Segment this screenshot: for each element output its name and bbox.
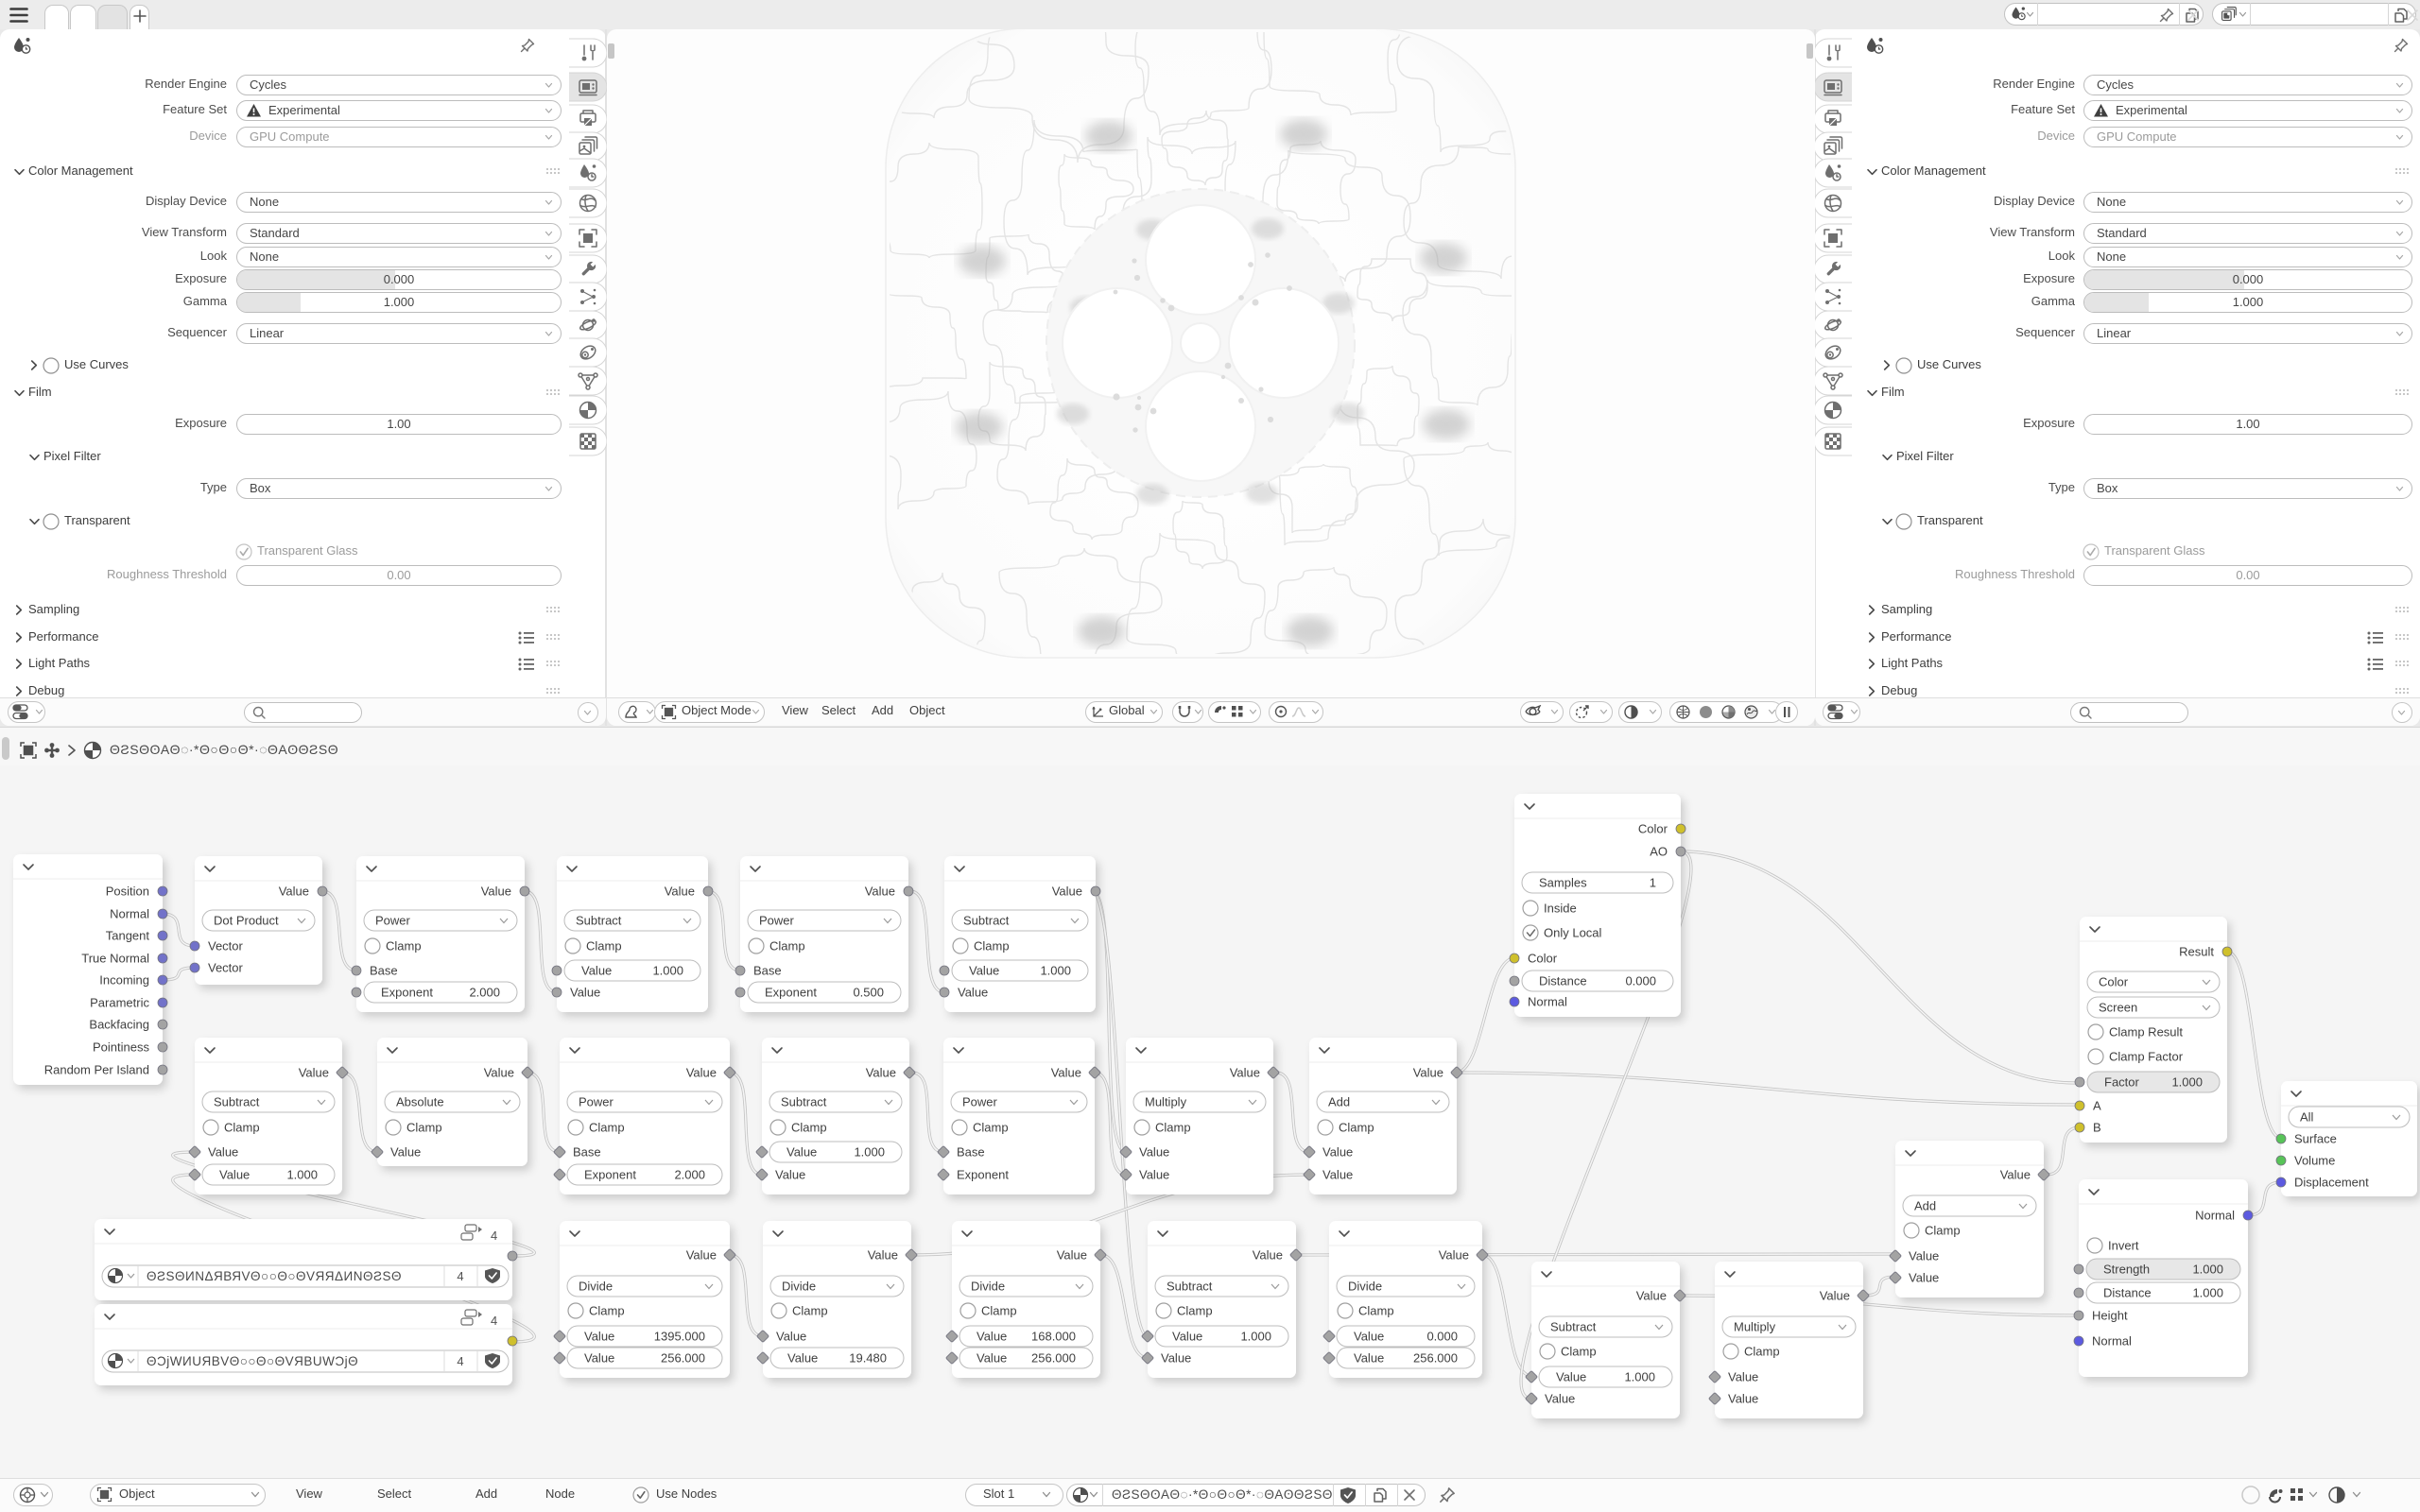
svg-text:Subtract: Subtract bbox=[1550, 1320, 1597, 1334]
svg-text:Value: Value bbox=[1161, 1351, 1191, 1366]
svg-text:Add: Add bbox=[1328, 1095, 1350, 1109]
svg-text:Clamp: Clamp bbox=[1561, 1345, 1597, 1359]
svg-text:Volume: Volume bbox=[2294, 1154, 2335, 1168]
svg-text:Value: Value bbox=[776, 1330, 806, 1344]
svg-text:Divide: Divide bbox=[1348, 1280, 1382, 1294]
svg-text:Result: Result bbox=[2179, 945, 2214, 959]
svg-text:Clamp: Clamp bbox=[1155, 1121, 1191, 1135]
svg-text:Clamp: Clamp bbox=[589, 1304, 625, 1318]
svg-text:Power: Power bbox=[962, 1095, 998, 1109]
svg-text:256.000: 256.000 bbox=[1413, 1351, 1458, 1366]
svg-text:Power: Power bbox=[579, 1095, 614, 1109]
svg-text:1: 1 bbox=[1650, 876, 1656, 890]
svg-text:Value: Value bbox=[1556, 1370, 1586, 1384]
svg-text:Clamp: Clamp bbox=[981, 1304, 1017, 1318]
svg-text:Samples: Samples bbox=[1539, 876, 1587, 890]
svg-text:Divide: Divide bbox=[579, 1280, 613, 1294]
svg-text:1.000: 1.000 bbox=[1240, 1330, 1271, 1344]
svg-text:Value: Value bbox=[219, 1168, 250, 1182]
svg-text:Base: Base bbox=[573, 1145, 601, 1160]
svg-text:1.000: 1.000 bbox=[652, 964, 683, 978]
svg-text:2.000: 2.000 bbox=[469, 986, 500, 1000]
svg-text:Value: Value bbox=[1322, 1168, 1353, 1182]
svg-text:1.000: 1.000 bbox=[286, 1168, 318, 1182]
svg-text:Value: Value bbox=[958, 986, 988, 1000]
svg-text:4: 4 bbox=[491, 1228, 497, 1243]
svg-text:Value: Value bbox=[1636, 1289, 1667, 1303]
svg-text:Clamp: Clamp bbox=[769, 939, 805, 954]
svg-text:Clamp: Clamp bbox=[1358, 1304, 1394, 1318]
svg-text:Inside: Inside bbox=[1544, 902, 1577, 916]
svg-text:Value: Value bbox=[584, 1351, 614, 1366]
svg-text:Subtract: Subtract bbox=[214, 1095, 260, 1109]
svg-text:Backfacing: Backfacing bbox=[89, 1018, 149, 1032]
svg-text:Value: Value bbox=[665, 885, 695, 899]
svg-text:Value: Value bbox=[786, 1145, 817, 1160]
svg-text:Divide: Divide bbox=[971, 1280, 1005, 1294]
svg-text:Divide: Divide bbox=[782, 1280, 816, 1294]
svg-text:Normal: Normal bbox=[2092, 1334, 2132, 1349]
svg-text:Value: Value bbox=[1439, 1248, 1469, 1263]
svg-text:Clamp: Clamp bbox=[974, 939, 1010, 954]
svg-text:Value: Value bbox=[977, 1330, 1007, 1344]
svg-text:Value: Value bbox=[1728, 1370, 1758, 1384]
svg-text:Value: Value bbox=[2000, 1168, 2031, 1182]
svg-text:Value: Value bbox=[775, 1168, 805, 1182]
svg-text:1.000: 1.000 bbox=[854, 1145, 885, 1160]
svg-text:Power: Power bbox=[375, 914, 411, 928]
svg-text:Clamp: Clamp bbox=[1339, 1121, 1374, 1135]
svg-text:Value: Value bbox=[866, 1066, 896, 1080]
svg-text:168.000: 168.000 bbox=[1031, 1330, 1076, 1344]
svg-text:Base: Base bbox=[370, 964, 398, 978]
svg-text:Normal: Normal bbox=[2195, 1209, 2235, 1223]
svg-text:Clamp: Clamp bbox=[1177, 1304, 1213, 1318]
svg-text:Value: Value bbox=[1172, 1330, 1202, 1344]
svg-text:Value: Value bbox=[1909, 1249, 1939, 1263]
svg-text:1.000: 1.000 bbox=[2171, 1075, 2203, 1090]
svg-text:Value: Value bbox=[1057, 1248, 1087, 1263]
svg-text:Value: Value bbox=[1253, 1248, 1283, 1263]
svg-text:Value: Value bbox=[1052, 885, 1082, 899]
svg-text:Add: Add bbox=[1914, 1199, 1936, 1213]
svg-text:Distance: Distance bbox=[1539, 974, 1587, 988]
svg-text:1.000: 1.000 bbox=[2192, 1286, 2223, 1300]
svg-text:Value: Value bbox=[787, 1351, 818, 1366]
svg-text:256.000: 256.000 bbox=[661, 1351, 705, 1366]
svg-text:Subtract: Subtract bbox=[781, 1095, 827, 1109]
svg-text:Height: Height bbox=[2092, 1309, 2128, 1323]
svg-text:1395.000: 1395.000 bbox=[654, 1330, 705, 1344]
svg-text:All: All bbox=[2300, 1110, 2314, 1125]
svg-text:Value: Value bbox=[1820, 1289, 1850, 1303]
svg-text:Vector: Vector bbox=[208, 961, 244, 975]
svg-text:Color: Color bbox=[2099, 975, 2129, 989]
svg-text:Factor: Factor bbox=[2104, 1075, 2140, 1090]
svg-text:Exponent: Exponent bbox=[381, 986, 433, 1000]
svg-text:Parametric: Parametric bbox=[90, 996, 149, 1010]
svg-text:Value: Value bbox=[1728, 1392, 1758, 1406]
svg-text:Base: Base bbox=[753, 964, 782, 978]
svg-text:Value: Value bbox=[299, 1066, 329, 1080]
svg-text:256.000: 256.000 bbox=[1031, 1351, 1076, 1366]
svg-text:Distance: Distance bbox=[2103, 1286, 2152, 1300]
svg-text:1.000: 1.000 bbox=[1624, 1370, 1655, 1384]
svg-text:4: 4 bbox=[491, 1314, 497, 1328]
svg-text:Vector: Vector bbox=[208, 939, 244, 954]
svg-text:Value: Value bbox=[868, 1248, 898, 1263]
svg-text:Random Per Island: Random Per Island bbox=[44, 1063, 149, 1077]
svg-text:Value: Value bbox=[969, 964, 999, 978]
svg-text:AO: AO bbox=[1650, 845, 1668, 859]
svg-text:Value: Value bbox=[484, 1066, 514, 1080]
svg-text:Value: Value bbox=[279, 885, 309, 899]
svg-text:Absolute: Absolute bbox=[396, 1095, 444, 1109]
svg-text:Surface: Surface bbox=[2294, 1132, 2337, 1146]
svg-text:Clamp: Clamp bbox=[973, 1121, 1009, 1135]
svg-text:Clamp: Clamp bbox=[1925, 1224, 1961, 1238]
svg-text:Value: Value bbox=[1322, 1145, 1353, 1160]
svg-text:Subtract: Subtract bbox=[576, 914, 622, 928]
svg-text:Exponent: Exponent bbox=[765, 986, 817, 1000]
svg-text:Value: Value bbox=[1051, 1066, 1081, 1080]
svg-text:Exponent: Exponent bbox=[584, 1168, 636, 1182]
svg-text:Clamp Result: Clamp Result bbox=[2109, 1025, 2183, 1039]
svg-text:0.000: 0.000 bbox=[1426, 1330, 1458, 1344]
svg-text:Value: Value bbox=[1545, 1392, 1575, 1406]
svg-text:Value: Value bbox=[1230, 1066, 1260, 1080]
svg-text:Pointiness: Pointiness bbox=[93, 1040, 149, 1055]
svg-text:Only Local: Only Local bbox=[1544, 926, 1602, 940]
svg-text:19.480: 19.480 bbox=[849, 1351, 887, 1366]
svg-text:Dot Product: Dot Product bbox=[214, 914, 279, 928]
svg-text:Incoming: Incoming bbox=[99, 973, 149, 988]
svg-text:Value: Value bbox=[1354, 1330, 1384, 1344]
svg-text:Color: Color bbox=[1638, 822, 1668, 836]
svg-text:Value: Value bbox=[570, 986, 600, 1000]
svg-text:True Normal: True Normal bbox=[81, 952, 149, 966]
svg-text:Clamp: Clamp bbox=[386, 939, 422, 954]
svg-text:Invert: Invert bbox=[2108, 1239, 2139, 1253]
svg-text:4: 4 bbox=[457, 1354, 463, 1368]
svg-text:Clamp: Clamp bbox=[792, 1304, 828, 1318]
svg-text:1.000: 1.000 bbox=[1040, 964, 1071, 978]
svg-text:Clamp: Clamp bbox=[589, 1121, 625, 1135]
svg-text:Normal: Normal bbox=[110, 907, 149, 921]
svg-text:Value: Value bbox=[865, 885, 895, 899]
svg-text:4: 4 bbox=[457, 1269, 463, 1283]
svg-text:Exponent: Exponent bbox=[957, 1168, 1009, 1182]
svg-text:2.000: 2.000 bbox=[674, 1168, 705, 1182]
svg-text:Subtract: Subtract bbox=[963, 914, 1010, 928]
svg-text:0.500: 0.500 bbox=[853, 986, 884, 1000]
svg-text:Screen: Screen bbox=[2099, 1001, 2137, 1015]
svg-text:Value: Value bbox=[581, 964, 612, 978]
svg-text:Displacement: Displacement bbox=[2294, 1176, 2369, 1190]
svg-text:Strength: Strength bbox=[2103, 1263, 2150, 1277]
svg-text:Value: Value bbox=[686, 1066, 717, 1080]
svg-text:Clamp: Clamp bbox=[406, 1121, 442, 1135]
svg-text:Multiply: Multiply bbox=[1145, 1095, 1187, 1109]
svg-text:Value: Value bbox=[1354, 1351, 1384, 1366]
svg-text:0.000: 0.000 bbox=[1625, 974, 1656, 988]
svg-text:1.000: 1.000 bbox=[2192, 1263, 2223, 1277]
svg-text:Position: Position bbox=[106, 885, 149, 899]
svg-text:Value: Value bbox=[1139, 1145, 1169, 1160]
svg-text:Value: Value bbox=[584, 1330, 614, 1344]
svg-text:Clamp: Clamp bbox=[791, 1121, 827, 1135]
svg-text:Clamp: Clamp bbox=[586, 939, 622, 954]
svg-text:Value: Value bbox=[686, 1248, 717, 1263]
svg-text:Value: Value bbox=[1909, 1271, 1939, 1285]
svg-text:A: A bbox=[2093, 1099, 2101, 1113]
svg-text:Tangent: Tangent bbox=[106, 929, 150, 943]
svg-text:Color: Color bbox=[1528, 952, 1558, 966]
svg-text:Value: Value bbox=[1139, 1168, 1169, 1182]
svg-text:ΘƆϳWИUЯВVΘ○○Θ○ΘVЯВUWƆϳΘ: ΘƆϳWИUЯВVΘ○○Θ○ΘVЯВUWƆϳΘ bbox=[147, 1354, 358, 1368]
svg-text:Subtract: Subtract bbox=[1167, 1280, 1213, 1294]
svg-text:Clamp: Clamp bbox=[224, 1121, 260, 1135]
svg-text:Multiply: Multiply bbox=[1734, 1320, 1776, 1334]
svg-text:Value: Value bbox=[390, 1145, 421, 1160]
svg-text:B: B bbox=[2093, 1121, 2101, 1135]
svg-text:Value: Value bbox=[481, 885, 511, 899]
svg-text:Power: Power bbox=[759, 914, 795, 928]
svg-text:ΘƧSΘИΝΔЯВЯVΘ○○Θ○ΘVЯЯΔИNΘƧSΘ: ΘƧSΘИΝΔЯВЯVΘ○○Θ○ΘVЯЯΔИNΘƧSΘ bbox=[147, 1269, 402, 1283]
svg-text:Value: Value bbox=[208, 1145, 238, 1160]
svg-text:Clamp Factor: Clamp Factor bbox=[2109, 1050, 2184, 1064]
svg-text:Normal: Normal bbox=[1528, 995, 1567, 1009]
svg-text:Base: Base bbox=[957, 1145, 985, 1160]
svg-text:Clamp: Clamp bbox=[1744, 1345, 1780, 1359]
svg-text:Value: Value bbox=[977, 1351, 1007, 1366]
svg-text:Value: Value bbox=[1413, 1066, 1443, 1080]
